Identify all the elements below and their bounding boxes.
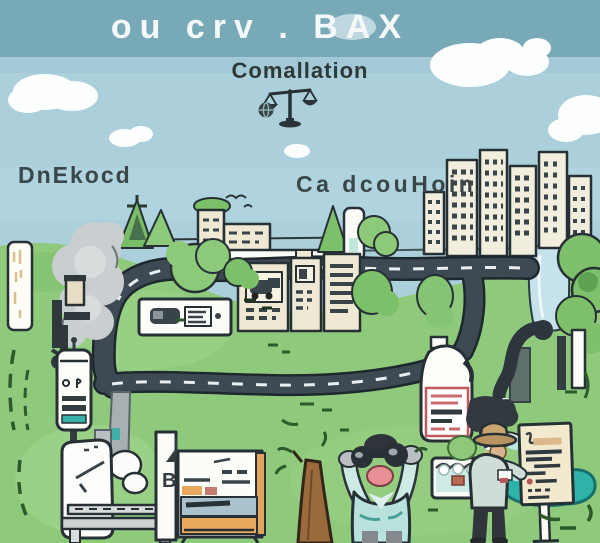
building-2	[291, 250, 321, 331]
vehicle-sign	[139, 299, 231, 335]
left-signpost	[8, 242, 32, 330]
cloud	[284, 144, 310, 158]
globe-icon	[259, 103, 274, 118]
easel-letter: B	[162, 470, 176, 492]
illustration-canvas: B	[0, 0, 600, 543]
scene: B	[0, 0, 600, 543]
